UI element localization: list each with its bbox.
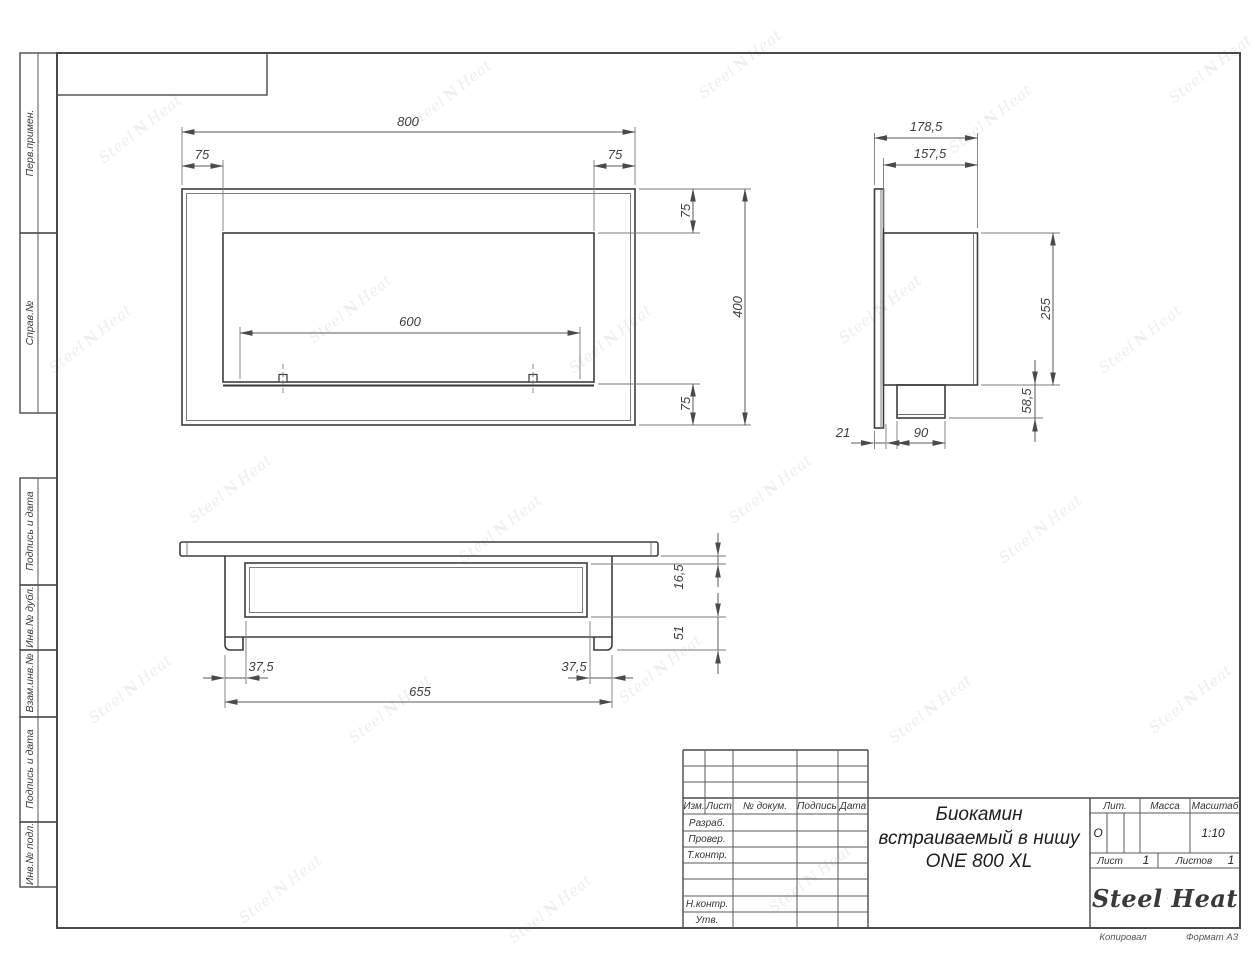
sheet-frame	[57, 53, 1240, 928]
sheet-value: 1	[1143, 853, 1150, 867]
footer-notes: Копировал Формат А3	[1099, 932, 1238, 943]
dim-bottom-margin-left: 37,5	[248, 659, 274, 674]
row-tkontr: Т.контр.	[687, 850, 727, 861]
col-doc: № докум.	[743, 801, 787, 812]
top-reference-box	[57, 53, 267, 95]
logo-flame-icon	[1167, 882, 1168, 914]
bottom-view: 16,5 51 37,5 37,5 655	[180, 533, 726, 708]
sheets-value: 1	[1228, 853, 1235, 867]
dim-side-depth-total: 178,5	[910, 119, 943, 134]
sidebar-label: Взам.инв.№	[24, 653, 36, 712]
doc-title-line1: Биокамин	[935, 804, 1023, 825]
sidebar-label: Перв.примен.	[24, 110, 36, 177]
lit-label: Лит.	[1102, 801, 1126, 812]
dim-bottom-margin-right: 37,5	[561, 659, 587, 674]
dim-front-offset-right: 75	[608, 147, 623, 162]
col-date: Дата	[839, 801, 867, 812]
mass-label: Масса	[1150, 801, 1180, 812]
dim-side-height-bottom: 58,5	[1019, 388, 1034, 414]
sheet-label: Лист	[1096, 856, 1123, 867]
dim-side-depth-body: 157,5	[914, 146, 947, 161]
brand-logo: Steel Heat	[1092, 870, 1238, 926]
sidebar-label: Инв.№ дубл.	[24, 586, 36, 648]
doc-title-line2: встраиваемый в нишу	[878, 828, 1081, 849]
dim-front-inset-bottom: 75	[678, 396, 693, 411]
foot-right	[594, 637, 612, 650]
foot-left	[225, 637, 243, 650]
drawing-sheet: SteelNHeat SteelNHeat SteelNHeat SteelNH…	[0, 0, 1255, 970]
logo-heat-text: Heat	[1171, 884, 1238, 913]
dim-front-height: 400	[730, 295, 745, 317]
scale-value: 1:10	[1201, 826, 1225, 840]
sidebar-label: Подпись и дата	[24, 729, 36, 809]
dim-front-inset-top: 75	[678, 203, 693, 218]
sidebar-label: Подпись и дата	[24, 491, 36, 571]
dim-front-offset-left: 75	[195, 147, 210, 162]
front-view: 800 75 75 75 400 75 600	[182, 114, 751, 425]
doc-title-line3: ONE 800 XL	[926, 851, 1033, 872]
dim-side-box: 90	[914, 425, 929, 440]
row-prover: Провер.	[688, 834, 725, 845]
dim-side-height-inner: 255	[1038, 297, 1053, 320]
lit-value: О	[1093, 826, 1102, 840]
col-izm: Изм.	[683, 801, 704, 812]
row-utv: Утв.	[695, 915, 719, 926]
logo-steel-text: Steel	[1092, 884, 1163, 913]
sidebar-label: Справ.№	[24, 301, 36, 346]
sidebar-label: Инв.№ подл.	[24, 823, 36, 885]
dim-side-flange: 21	[835, 425, 850, 440]
side-view: 178,5 157,5 255 58,5 21 90	[835, 119, 1060, 449]
dim-front-burner-length: 600	[399, 314, 421, 329]
sheets-label: Листов	[1175, 856, 1212, 867]
scale-label: Масштаб	[1192, 800, 1239, 812]
dim-bottom-body-width: 655	[409, 684, 431, 699]
dim-front-width: 800	[397, 114, 419, 129]
dim-bottom-glass-offset: 16,5	[671, 564, 686, 590]
row-razrab: Разраб.	[689, 817, 725, 829]
dim-bottom-depth-inner: 51	[671, 626, 686, 640]
col-sign: Подпись	[797, 801, 837, 812]
row-nkontr: Н.контр.	[686, 899, 728, 910]
format-label: Формат А3	[1186, 932, 1239, 943]
copied-label: Копировал	[1099, 932, 1147, 943]
drawing-canvas: Перв.примен. Справ.№ Подпись и дата Инв.…	[0, 0, 1255, 970]
sidebar-boxes: Перв.примен. Справ.№ Подпись и дата Инв.…	[20, 53, 57, 887]
col-list: Лист	[705, 801, 732, 812]
